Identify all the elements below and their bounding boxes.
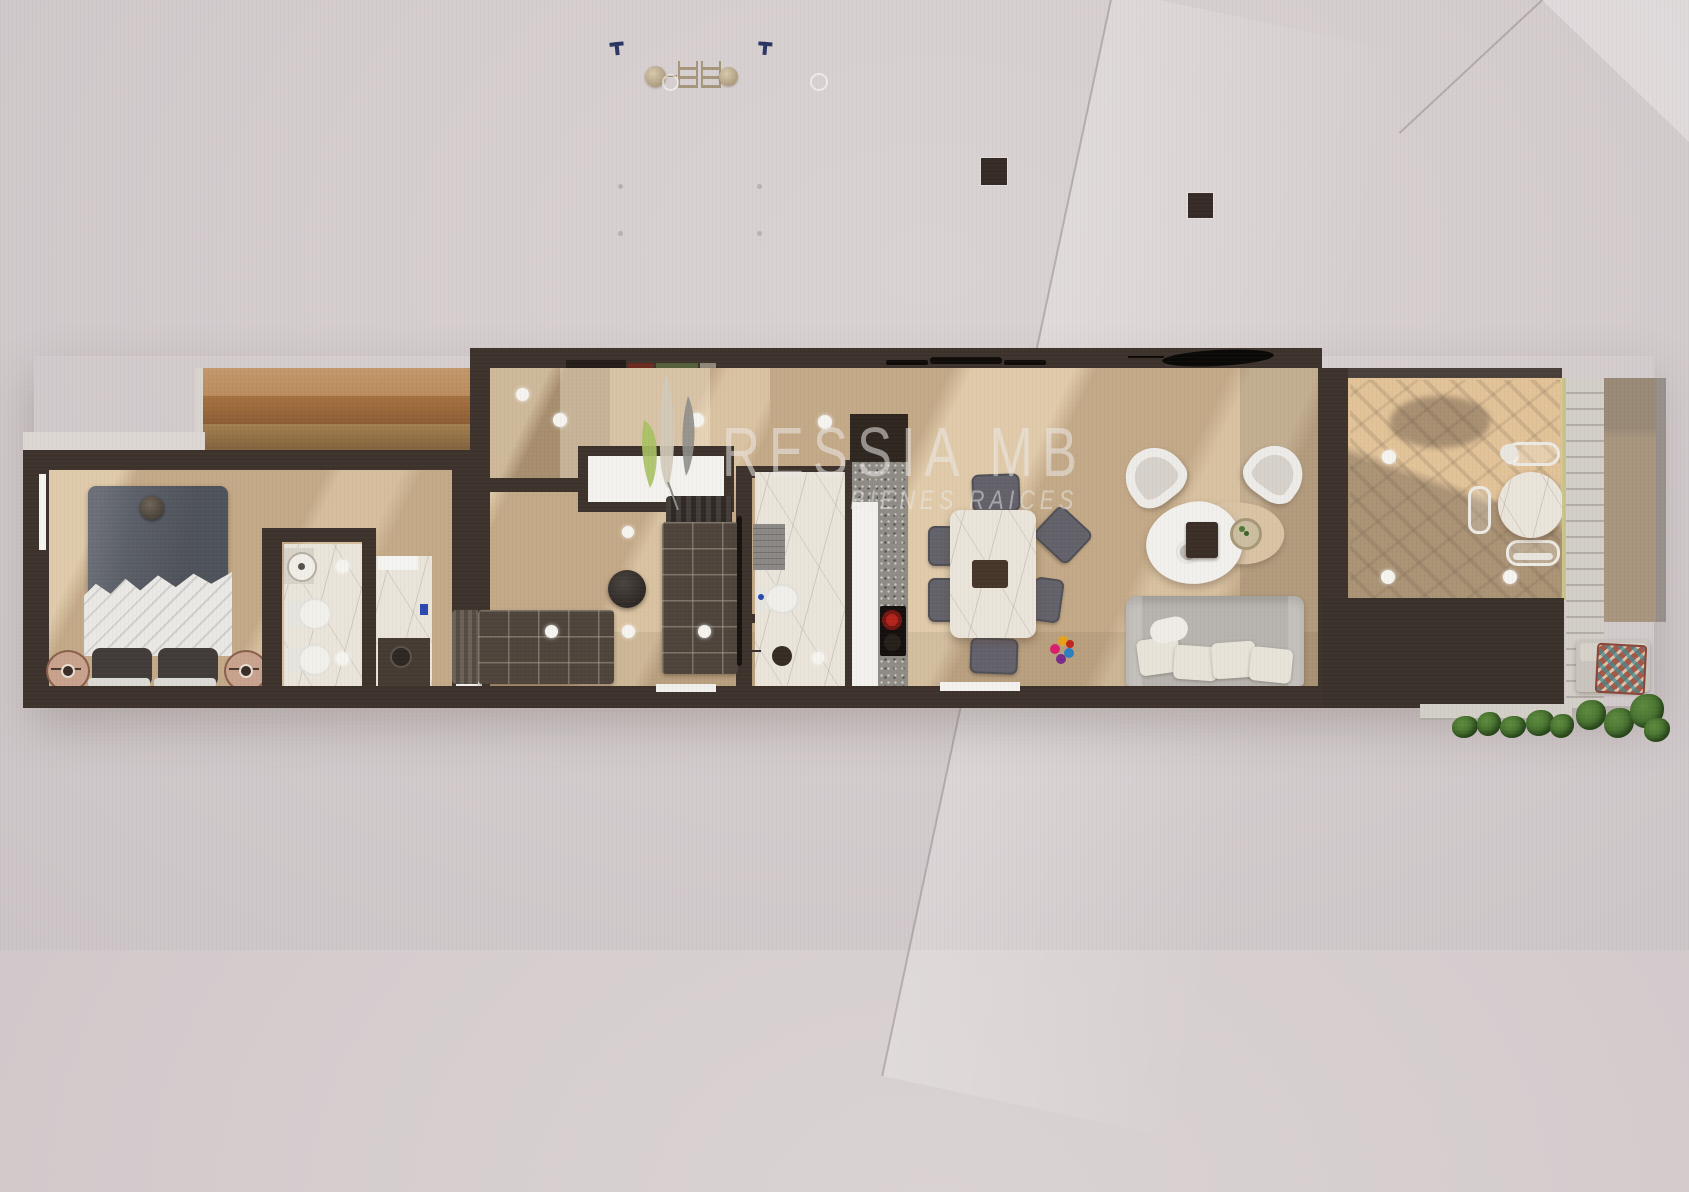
wood-deck-shade	[203, 368, 478, 452]
bedroom3-side-rail	[737, 516, 742, 666]
terrace-bottom-wall	[1322, 598, 1564, 708]
bath1-top-wall	[262, 528, 374, 542]
roof-louver-tail	[1128, 356, 1164, 358]
ceiling-light-icon	[1382, 450, 1396, 464]
ceiling-light-icon	[622, 625, 635, 638]
dining-centerpiece	[972, 560, 1008, 588]
pouf	[608, 570, 646, 608]
master-outer-band	[23, 432, 205, 452]
plant-bowl	[1230, 518, 1262, 550]
shrub-icon	[1452, 716, 1478, 738]
ceiling-light-icon	[622, 526, 634, 538]
bedroom3-threshold	[656, 684, 716, 692]
colorful-toy	[1050, 636, 1076, 664]
central-left-wall	[470, 348, 492, 468]
master-bed-button	[140, 496, 164, 520]
bedroom2-top-wall	[490, 478, 586, 492]
coffee-table-tray	[1186, 522, 1218, 558]
bath2-mat	[753, 524, 785, 570]
bath2-floor	[755, 472, 845, 686]
ceiling-light-icon	[818, 415, 832, 429]
ceiling-light-icon	[336, 560, 349, 573]
master-left-window	[39, 474, 46, 550]
kitchen-island-white	[852, 502, 878, 686]
entry-door-threshold	[940, 682, 1020, 691]
roof-slat-icon	[1004, 360, 1046, 365]
patterned-pillow	[1595, 643, 1648, 696]
ceiling-light-icon	[1503, 570, 1517, 584]
bath2-shower-head-icon	[772, 646, 792, 666]
ceiling-light-icon	[553, 413, 567, 427]
terrace-chair-knob	[1500, 444, 1518, 462]
shower-head-icon	[392, 648, 410, 666]
bedroom3-headboard	[666, 496, 732, 522]
ceiling-light-icon	[690, 413, 704, 427]
dining-chair	[969, 637, 1018, 675]
master-top-wall	[23, 450, 480, 470]
roof-slat-icon	[930, 357, 1002, 364]
ceiling-light-icon	[698, 625, 711, 638]
ceiling-light-icon	[812, 652, 824, 664]
wood-deck	[203, 368, 478, 452]
shower-window	[378, 556, 418, 570]
ceiling-light-icon	[545, 625, 558, 638]
dark-pan	[884, 634, 901, 651]
ceiling-light-icon	[336, 652, 349, 665]
sofa-cushion	[1248, 646, 1293, 684]
terrace-round-table	[1498, 472, 1564, 538]
shrub-icon	[1500, 716, 1526, 738]
floor-plan	[0, 0, 1689, 950]
shrub-icon	[1576, 700, 1606, 730]
ceiling-light-icon	[516, 388, 529, 401]
terrace-chair	[1506, 540, 1560, 566]
bath2-blue-fitting	[758, 594, 764, 600]
bedroom2-bed	[452, 610, 614, 684]
bath1-toilet	[288, 598, 334, 630]
bath1-bidet	[288, 644, 334, 676]
bath1-sink	[287, 552, 317, 582]
terrace-top-wall	[1348, 368, 1562, 378]
bath1-shower-wall	[362, 528, 376, 686]
shrub-icon	[1550, 714, 1574, 738]
side-room-floor	[1604, 378, 1658, 622]
bedroom3-bed	[662, 522, 738, 674]
shrub-icon	[1644, 718, 1670, 742]
roof-slat-icon	[886, 360, 928, 365]
sofa-roll-pillow	[1148, 614, 1190, 645]
dining-chair	[971, 473, 1020, 513]
bath1-left-wall	[262, 528, 282, 686]
master-bed	[88, 486, 228, 686]
red-pot	[882, 610, 902, 630]
shower-blue-fitting	[420, 604, 428, 615]
shrub-icon	[1477, 712, 1501, 736]
sofa	[1126, 596, 1304, 686]
kitchen-upper-cabinet	[850, 414, 908, 462]
tree-canopy-shadow	[1390, 396, 1490, 448]
bath2-towel-rack	[747, 650, 761, 652]
terrace-chair	[1468, 486, 1491, 534]
wall-art-strip	[566, 360, 626, 368]
plan-right-wall	[1656, 378, 1666, 622]
ceiling-light-icon	[1381, 570, 1395, 584]
